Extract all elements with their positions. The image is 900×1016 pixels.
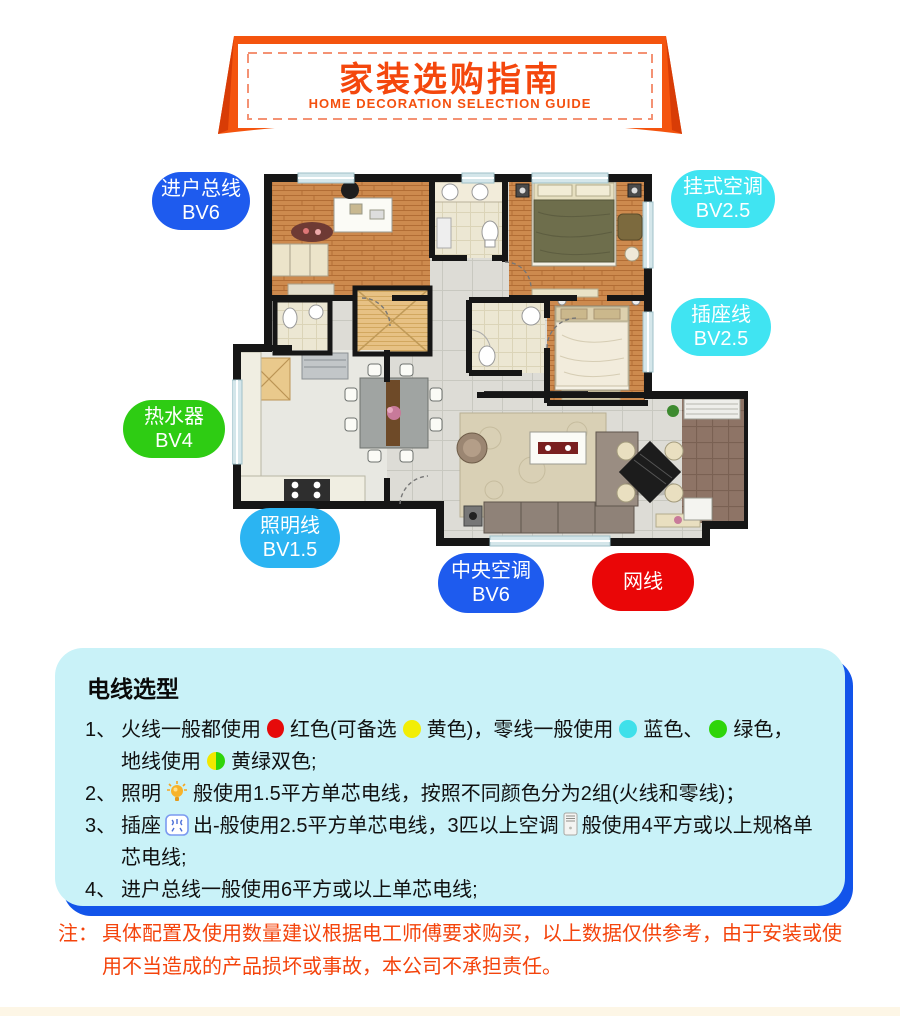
toilet-icon — [479, 346, 495, 366]
bedroom-chair — [618, 214, 642, 240]
sofa — [484, 502, 634, 533]
study-sofa — [272, 244, 328, 276]
disclaimer-note: 注： 具体配置及使用数量建议根据电工师傅要求购买，以上数据仅供参考，由于安装或使… — [58, 918, 858, 984]
study-chair — [341, 181, 359, 199]
list-item: 2、 照明般使用1.5平方单芯电线，按照不同颜色分为2组(火线和零线)； — [85, 778, 817, 810]
sink-icon — [442, 184, 458, 200]
yellow-green-wire-dot-icon — [207, 752, 225, 770]
living-rug — [460, 413, 606, 517]
wire-guide-box: 电线选型 1、 火线一般都使用红色(可备选黄色)，零线一般使用蓝色、绿色， 地线… — [55, 648, 845, 906]
sink-icon — [522, 307, 540, 325]
power-socket-icon — [165, 814, 189, 836]
label-socket-line: 插座线 BV2.5 — [671, 298, 771, 356]
wire-guide-list: 1、 火线一般都使用红色(可备选黄色)，零线一般使用蓝色、绿色， 地线使用黄绿双… — [85, 714, 817, 906]
list-item: 4、 进户总线一般使用6平方或以上单芯电线; — [85, 874, 817, 906]
floor-plan — [232, 170, 748, 560]
label-lighting-line: 照明线 BV1.5 — [240, 508, 340, 568]
sink-icon — [472, 184, 488, 200]
page-subtitle: HOME DECORATION SELECTION GUIDE — [218, 96, 682, 111]
furniture — [239, 181, 740, 533]
list-item: 1、 火线一般都使用红色(可备选黄色)，零线一般使用蓝色、绿色， 地线使用黄绿双… — [85, 714, 817, 778]
label-wall-ac: 挂式空调 BV2.5 — [671, 170, 775, 228]
page: 家装选购指南 HOME DECORATION SELECTION GUIDE — [0, 0, 900, 1016]
cabinet-ac-icon — [563, 812, 578, 836]
yellow-wire-dot-icon — [403, 720, 421, 738]
label-network-cable: 网线 — [592, 553, 694, 611]
label-entry-main-line: 进户总线 BV6 — [152, 172, 250, 230]
plant-icon — [667, 405, 679, 417]
wire-guide-heading: 电线选型 — [87, 670, 817, 704]
study-rug — [291, 222, 333, 242]
round-dining-set — [617, 441, 683, 503]
sink-icon — [309, 305, 323, 319]
label-water-heater: 热水器 BV4 — [123, 400, 225, 458]
bottom-strip — [0, 1007, 900, 1016]
toilet-icon — [283, 308, 297, 328]
blue-wire-dot-icon — [619, 720, 637, 738]
red-wire-dot-icon — [267, 719, 284, 738]
kitchen-appliance — [302, 353, 348, 379]
light-bulb-icon — [165, 780, 189, 804]
list-item: 3、 插座出-般使用2.5平方单芯电线，3匹以上空调般使用4平方或以上规格单芯电… — [85, 810, 817, 874]
page-title: 家装选购指南 — [218, 52, 682, 101]
label-central-ac: 中央空调 BV6 — [438, 553, 544, 613]
stove-icon — [284, 479, 330, 501]
green-wire-dot-icon — [709, 720, 727, 738]
